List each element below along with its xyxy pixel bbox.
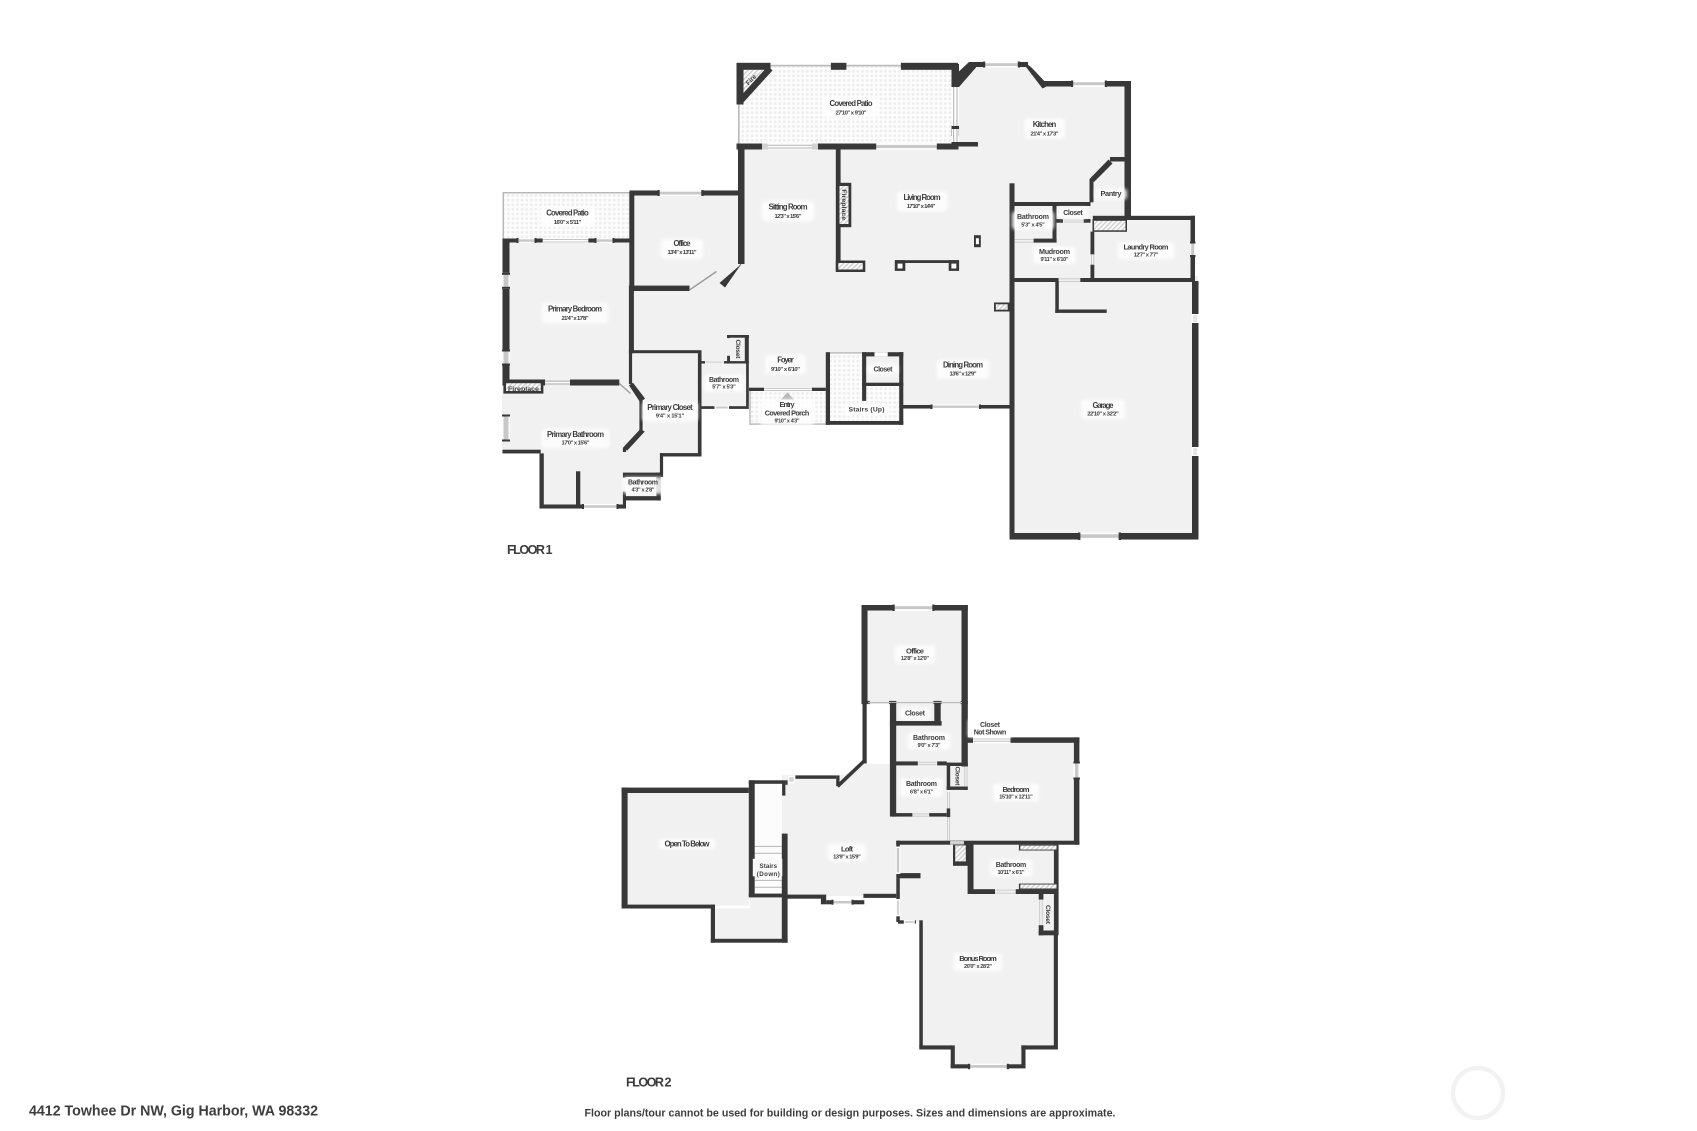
svg-text:(Down): (Down) bbox=[757, 871, 780, 878]
svg-text:Closet: Closet bbox=[953, 767, 960, 787]
svg-text:27'10" x 9'10": 27'10" x 9'10" bbox=[836, 111, 867, 117]
svg-text:Covered Patio: Covered Patio bbox=[830, 99, 873, 108]
svg-text:Closet: Closet bbox=[980, 722, 1001, 729]
svg-text:21'4" x 17'8": 21'4" x 17'8" bbox=[562, 316, 589, 322]
svg-text:9'0" x 7'3": 9'0" x 7'3" bbox=[918, 743, 941, 749]
svg-text:Office: Office bbox=[674, 239, 692, 248]
svg-text:Mudroom: Mudroom bbox=[1039, 247, 1070, 256]
svg-text:Bonus Room: Bonus Room bbox=[959, 954, 997, 963]
svg-text:Not Shown: Not Shown bbox=[974, 729, 1007, 736]
svg-text:16'0" x 5'11": 16'0" x 5'11" bbox=[554, 220, 582, 226]
svg-text:Dining Room: Dining Room bbox=[943, 361, 983, 370]
svg-text:Floor plans/tour cannot be use: Floor plans/tour cannot be used for buil… bbox=[585, 1108, 1116, 1120]
svg-text:Stairs: Stairs bbox=[760, 863, 778, 870]
svg-text:Fireplace: Fireplace bbox=[840, 189, 847, 220]
svg-text:Bathroom: Bathroom bbox=[996, 862, 1027, 869]
svg-text:4412 Towhee Dr NW, Gig Harbor,: 4412 Towhee Dr NW, Gig Harbor, WA 98332 bbox=[29, 1104, 318, 1120]
svg-text:Bathroom: Bathroom bbox=[913, 735, 945, 742]
svg-text:Bathroom: Bathroom bbox=[628, 480, 658, 487]
svg-text:Closet: Closet bbox=[734, 340, 741, 360]
svg-text:9'4" x 15'1": 9'4" x 15'1" bbox=[656, 414, 685, 420]
svg-text:13'6" x 12'9": 13'6" x 12'9" bbox=[950, 371, 977, 377]
svg-text:21'4" x 17'3": 21'4" x 17'3" bbox=[1031, 132, 1059, 138]
svg-text:12'3" x 15'6": 12'3" x 15'6" bbox=[775, 214, 802, 220]
svg-text:10'11" x 6'1": 10'11" x 6'1" bbox=[998, 870, 1025, 876]
svg-text:4'3" x 2'8": 4'3" x 2'8" bbox=[632, 487, 655, 493]
svg-text:12'7" x 7'7": 12'7" x 7'7" bbox=[1134, 252, 1159, 258]
svg-text:13'9" x 15'9": 13'9" x 15'9" bbox=[833, 854, 861, 860]
svg-text:20'0" x 28'2": 20'0" x 28'2" bbox=[964, 964, 992, 970]
svg-text:6'8" x 6'1": 6'8" x 6'1" bbox=[910, 790, 933, 796]
svg-text:22'10" x 32'2": 22'10" x 32'2" bbox=[1087, 411, 1119, 417]
svg-text:12'8" x 12'0": 12'8" x 12'0" bbox=[901, 656, 929, 662]
svg-text:Pantry: Pantry bbox=[1101, 189, 1123, 198]
svg-text:Closet: Closet bbox=[905, 710, 926, 717]
svg-text:15'10" x 12'11": 15'10" x 12'11" bbox=[999, 795, 1033, 801]
svg-text:Laundry Room: Laundry Room bbox=[1124, 243, 1169, 252]
svg-text:5'7" x 5'3": 5'7" x 5'3" bbox=[712, 384, 736, 390]
svg-text:Loft: Loft bbox=[841, 845, 853, 854]
svg-text:Primary Bedroom: Primary Bedroom bbox=[548, 305, 602, 314]
svg-text:13'4" x 13'11": 13'4" x 13'11" bbox=[668, 250, 697, 256]
svg-text:Bathroom: Bathroom bbox=[709, 377, 739, 384]
svg-text:Covered Patio: Covered Patio bbox=[546, 209, 589, 218]
svg-text:9'10" x 4'3": 9'10" x 4'3" bbox=[775, 418, 800, 424]
svg-text:17'10" x 14'4": 17'10" x 14'4" bbox=[907, 204, 936, 210]
svg-text:Kitchen: Kitchen bbox=[1033, 120, 1057, 129]
svg-text:Bathroom: Bathroom bbox=[906, 781, 937, 788]
svg-text:9'10" x 6'10": 9'10" x 6'10" bbox=[771, 367, 800, 373]
svg-text:Closet: Closet bbox=[874, 367, 894, 374]
svg-text:Closet: Closet bbox=[1044, 905, 1051, 925]
svg-text:Office: Office bbox=[906, 646, 924, 655]
svg-text:FLOOR 2: FLOOR 2 bbox=[626, 1076, 672, 1090]
svg-text:Closet: Closet bbox=[1063, 210, 1083, 217]
svg-text:Sitting Room: Sitting Room bbox=[769, 203, 808, 212]
svg-text:Primary Bathroom: Primary Bathroom bbox=[547, 430, 604, 439]
svg-text:Fireplace: Fireplace bbox=[508, 386, 539, 393]
svg-text:Bedroom: Bedroom bbox=[1003, 785, 1030, 794]
svg-text:Stairs (Up): Stairs (Up) bbox=[849, 406, 885, 413]
svg-text:Foyer: Foyer bbox=[777, 356, 794, 365]
svg-text:Covered Porch: Covered Porch bbox=[765, 408, 810, 417]
svg-text:FLOOR 1: FLOOR 1 bbox=[507, 543, 553, 557]
svg-text:Primary Closet: Primary Closet bbox=[647, 403, 693, 412]
svg-text:Open To Below: Open To Below bbox=[665, 839, 711, 848]
svg-text:Garage: Garage bbox=[1093, 401, 1115, 410]
svg-text:Bathroom: Bathroom bbox=[1017, 214, 1049, 221]
svg-text:5'3" x 4'5": 5'3" x 4'5" bbox=[1021, 222, 1045, 228]
svg-text:9'11" x 6'10": 9'11" x 6'10" bbox=[1041, 257, 1069, 263]
svg-text:Living Room: Living Room bbox=[904, 193, 941, 202]
svg-text:17'0" x 15'6": 17'0" x 15'6" bbox=[562, 441, 590, 447]
